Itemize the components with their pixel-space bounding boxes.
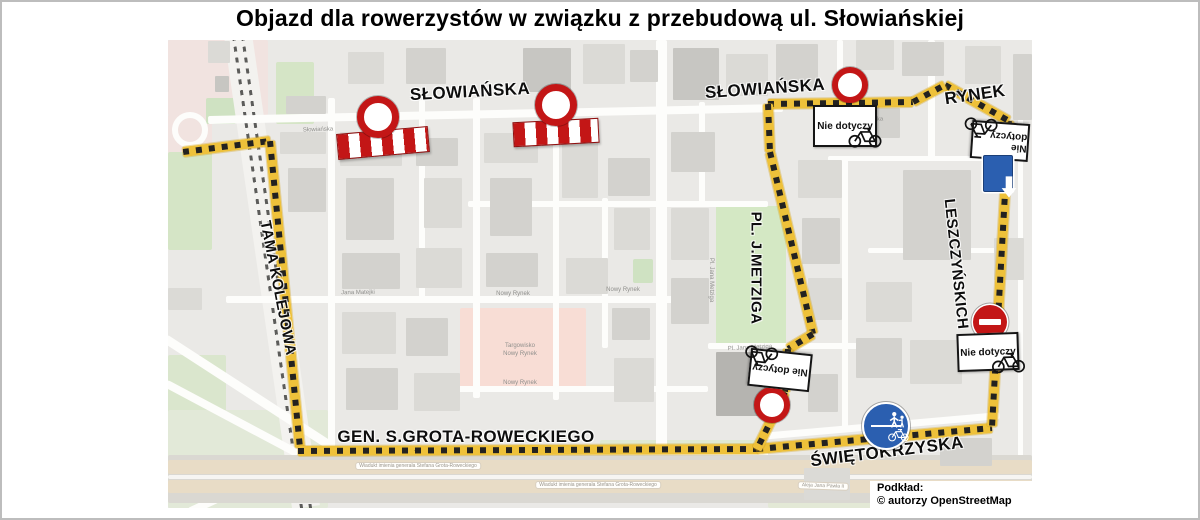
detour-route-segment: [763, 104, 775, 152]
no-vehicles-sign: [754, 387, 790, 423]
no-vehicles-sign: [535, 84, 577, 126]
building: [608, 158, 650, 196]
building: [562, 136, 598, 198]
street-road: [168, 475, 1032, 479]
building: [346, 178, 394, 240]
nie-dotyczy-sign: Nie dotyczy: [956, 332, 1019, 372]
attribution-osm-credit: © autorzy OpenStreetMap: [877, 495, 1032, 508]
building: [630, 50, 658, 82]
street-road: [168, 460, 1032, 474]
building: [856, 338, 902, 378]
building: [346, 368, 398, 410]
divider-line: [871, 425, 902, 427]
building: [288, 168, 326, 212]
building: [414, 373, 460, 411]
street-label-pl-j-metziga: PL. J.METZIGA: [748, 212, 765, 325]
street-microlabel: Jana Matejki: [341, 290, 375, 297]
building: [856, 40, 894, 70]
building: [1013, 54, 1032, 120]
building: [612, 308, 650, 340]
street-microlabel: Nowy Rynek: [496, 291, 530, 297]
building: [348, 52, 384, 84]
building: [910, 340, 962, 384]
building: [416, 248, 462, 288]
shared-path-sign: [862, 402, 910, 450]
no-vehicles-sign: [832, 67, 868, 103]
street-road: [226, 296, 706, 303]
building: [902, 42, 944, 76]
street-microlabel: Pl. Jana Metziga: [708, 258, 714, 302]
attribution-source-label: Podkład:: [877, 482, 1032, 495]
street-microlabel: Nowy Rynek: [503, 351, 537, 357]
building: [424, 178, 462, 228]
one-way-sign: [983, 155, 1013, 192]
street-road: [1018, 118, 1023, 458]
building: [490, 178, 532, 236]
street-road: [842, 158, 848, 430]
street-microlabel: Nowy Rynek: [503, 380, 537, 386]
building: [798, 160, 842, 198]
building: [406, 48, 446, 84]
street-microlabel: Targowisko: [505, 343, 535, 349]
page-title: Objazd dla rowerzystów w związku z przeb…: [0, 5, 1200, 32]
no-vehicles-sign: [357, 96, 399, 138]
building: [614, 208, 650, 250]
street-label-grota-roweckiego: GEN. S.GROTA-ROWECKIEGO: [337, 427, 594, 447]
building: [808, 374, 838, 412]
street-road: [473, 98, 480, 398]
street-microlabel: Słowiańska: [303, 126, 334, 133]
street-road: [446, 386, 708, 392]
building: [671, 278, 709, 324]
nie-dotyczy-sign: Nie dotyczy: [813, 105, 877, 147]
building: [566, 258, 608, 294]
map-green-area: [633, 259, 653, 283]
building: [280, 132, 326, 154]
building: [671, 208, 709, 260]
building: [406, 318, 448, 356]
building: [671, 132, 715, 172]
building: [342, 312, 396, 354]
building: [866, 282, 912, 322]
building: [802, 218, 840, 264]
building: [583, 44, 625, 84]
building: [208, 41, 230, 63]
street-microlabel: Wiadukt imienia generała Stefana Grota-R…: [535, 481, 661, 489]
building: [342, 253, 400, 289]
nie-dotyczy-sign: Nie dotyczy: [747, 348, 813, 392]
map-attribution: Podkład: © autorzy OpenStreetMap: [870, 481, 1032, 508]
street-microlabel: Nowy Rynek: [606, 287, 640, 293]
street-microlabel: Aleja Jana Pawła II: [798, 481, 849, 491]
building: [215, 76, 229, 92]
street-microlabel: Wiadukt imienia generała Stefana Grota-R…: [355, 462, 481, 470]
detour-map-figure: { "title": "Objazd dla rowerzystów w zwi…: [0, 0, 1200, 520]
building: [965, 46, 1001, 84]
map-canvas: SłowiańskaSłowiańskaJana MatejkiNowy Ryn…: [168, 40, 1032, 508]
building: [286, 96, 326, 114]
street-road: [656, 40, 667, 458]
map-green-area: [168, 152, 212, 250]
building: [614, 358, 654, 402]
building: [168, 288, 202, 310]
roundabout: [172, 112, 208, 148]
street-road: [328, 98, 335, 450]
building: [486, 253, 538, 287]
